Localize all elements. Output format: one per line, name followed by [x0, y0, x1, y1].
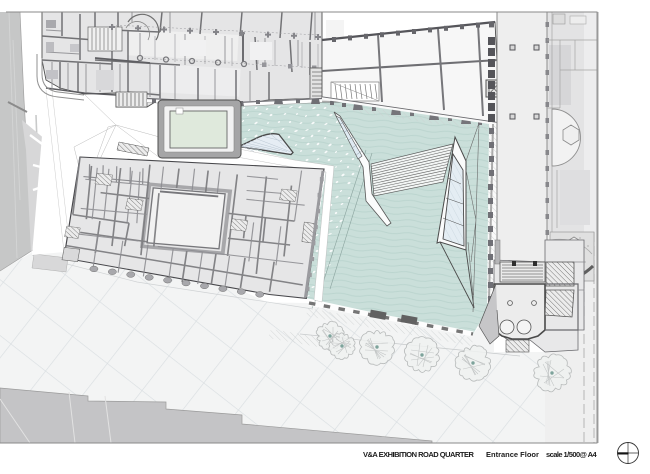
svg-text:V&A EXHIBITION ROAD QUARTER: V&A EXHIBITION ROAD QUARTER	[363, 450, 474, 459]
svg-text:Entrance Floor: Entrance Floor	[486, 450, 539, 459]
svg-text:scale 1/500@ A4: scale 1/500@ A4	[546, 450, 597, 459]
